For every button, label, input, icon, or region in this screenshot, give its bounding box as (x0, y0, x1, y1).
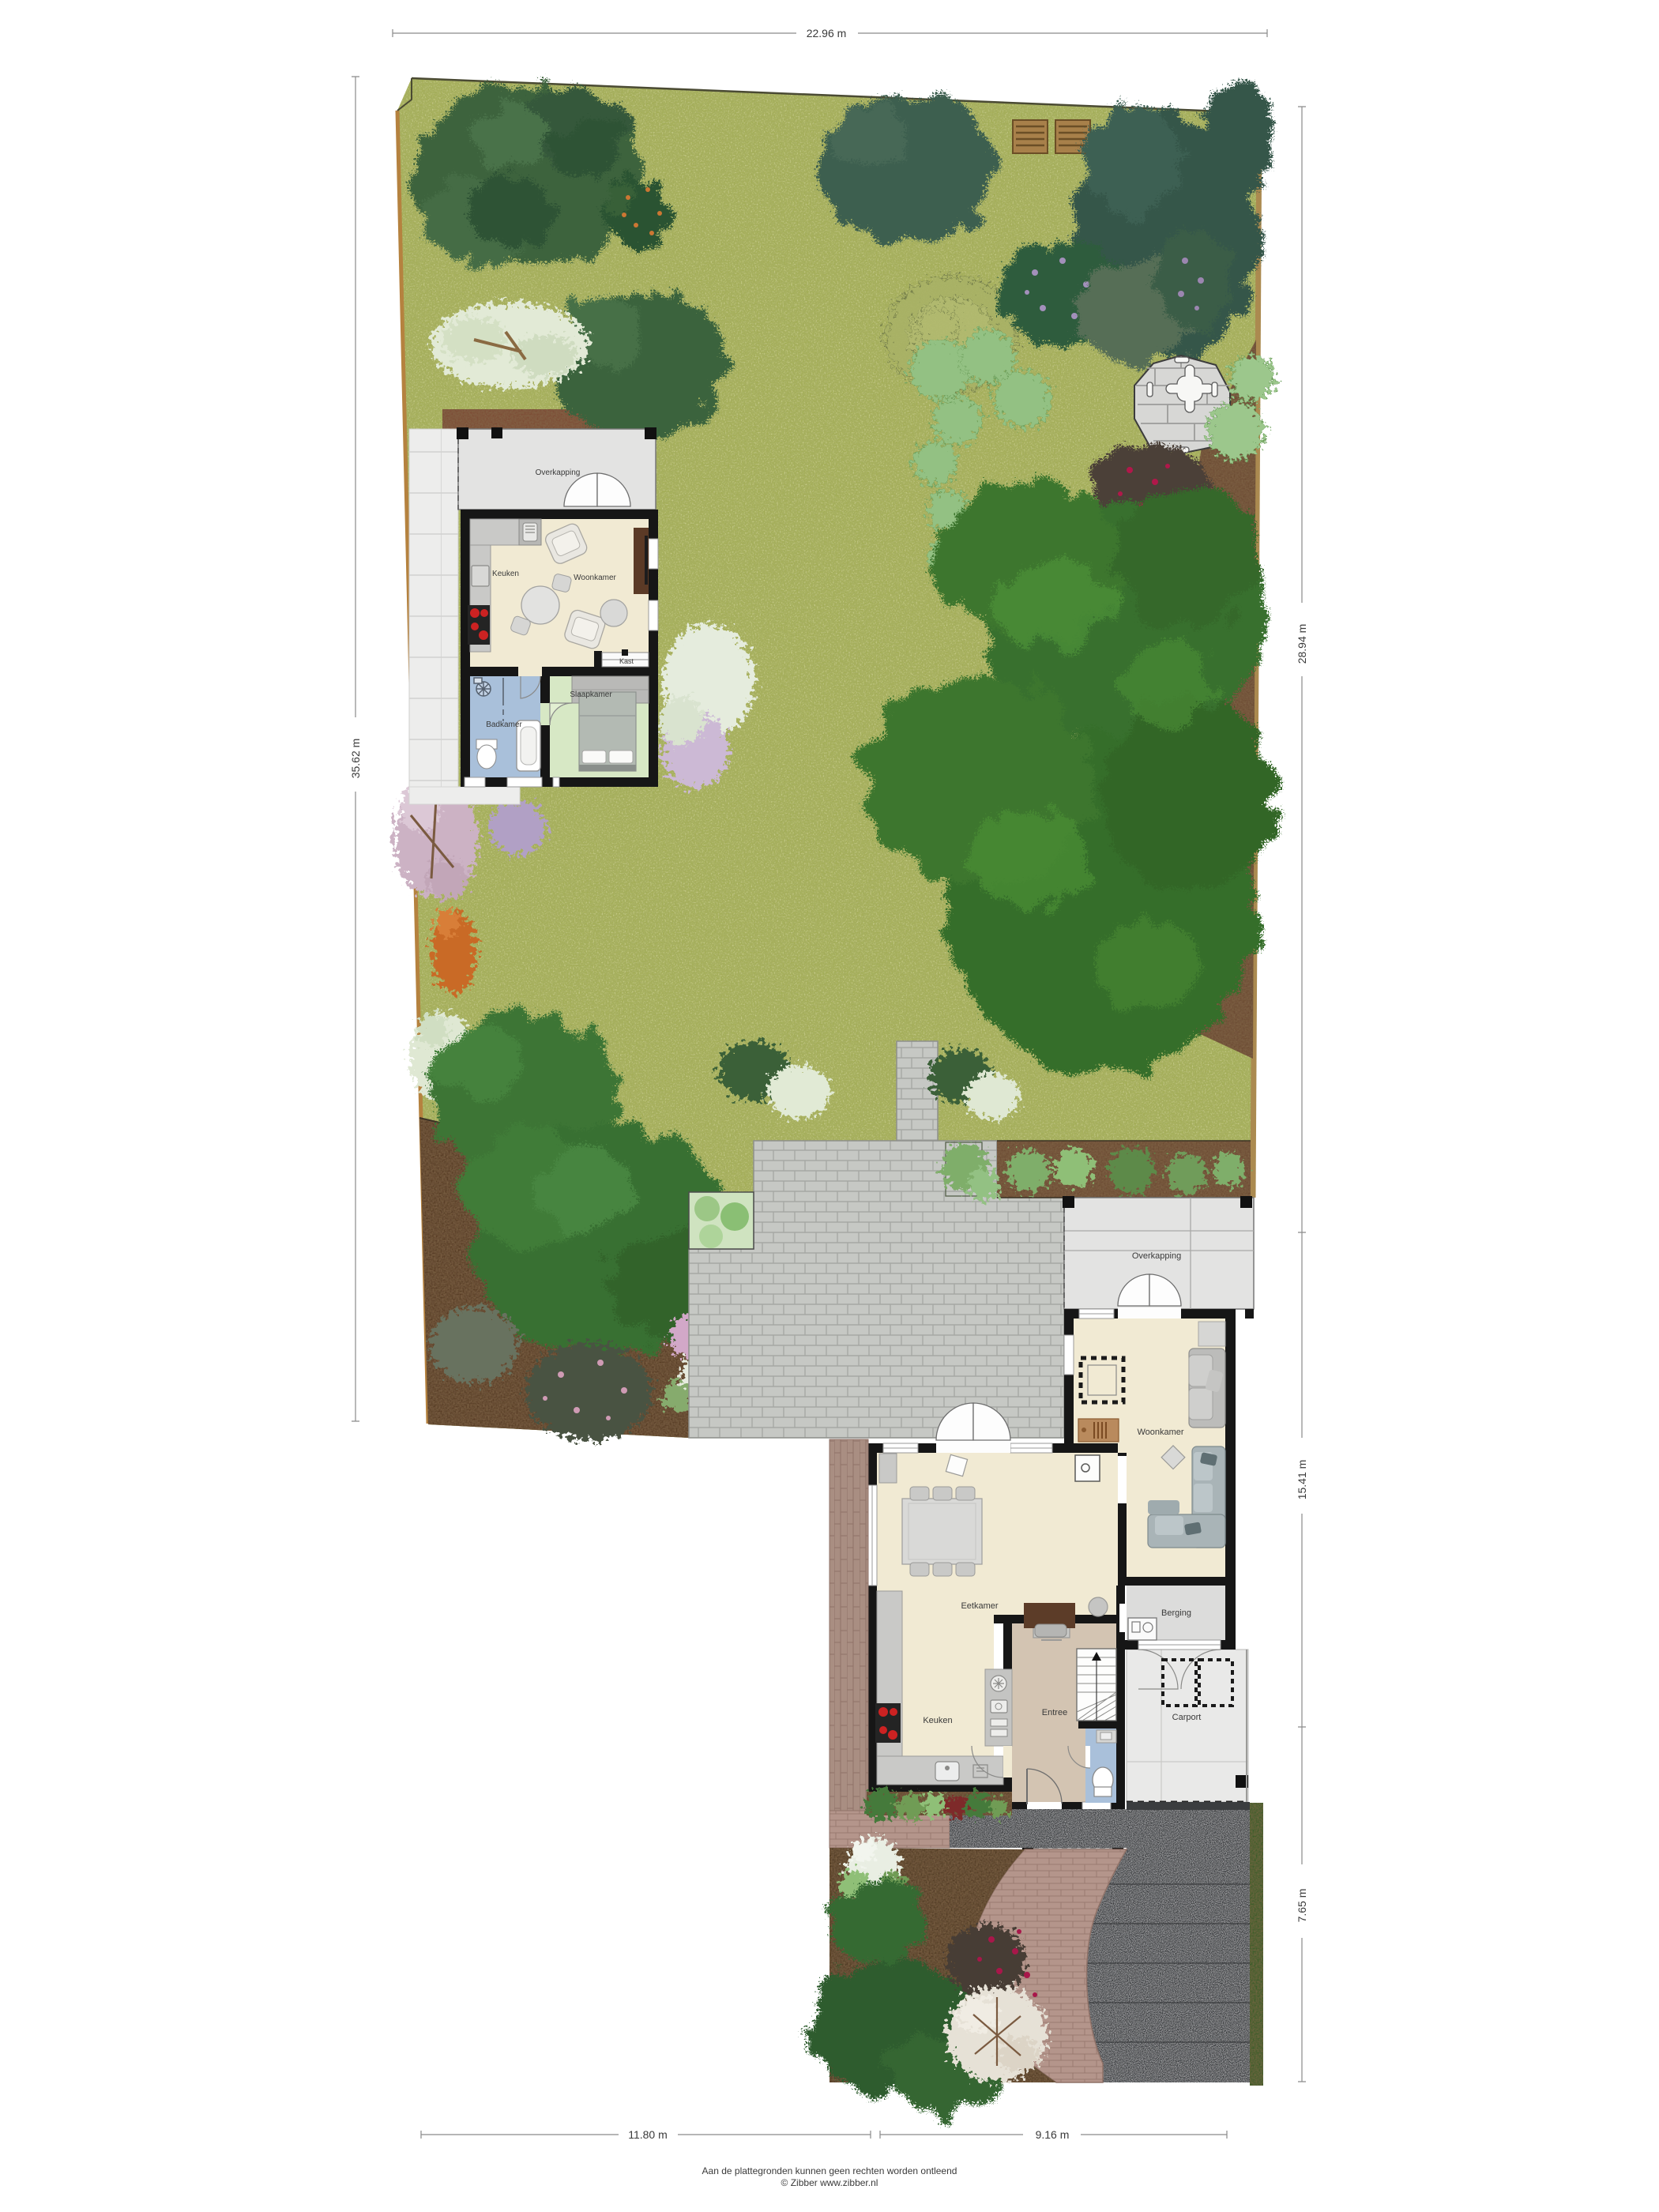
svg-text:11.80 m: 11.80 m (628, 2128, 668, 2141)
svg-text:Woonkamer: Woonkamer (1137, 1428, 1183, 1437)
svg-text:9.16 m: 9.16 m (1036, 2128, 1070, 2141)
svg-text:Overkapping: Overkapping (1132, 1251, 1181, 1261)
svg-text:22.96 m: 22.96 m (807, 27, 847, 39)
svg-text:© Zibber www.zibber.nl: © Zibber www.zibber.nl (781, 2177, 878, 2188)
svg-text:Aan de plattegronden kunnen ge: Aan de plattegronden kunnen geen rechten… (702, 2165, 957, 2176)
svg-text:Slaapkamer: Slaapkamer (570, 690, 612, 699)
svg-text:35.62 m: 35.62 m (349, 739, 362, 779)
svg-text:28.94 m: 28.94 m (1296, 624, 1308, 664)
svg-text:Kast: Kast (619, 657, 634, 665)
svg-text:7.65 m: 7.65 m (1296, 1889, 1308, 1923)
svg-text:Keuken: Keuken (492, 570, 519, 578)
svg-text:Carport: Carport (1172, 1713, 1202, 1722)
svg-text:Entree: Entree (1042, 1708, 1067, 1717)
svg-text:Keuken: Keuken (923, 1716, 952, 1725)
svg-text:Woonkamer: Woonkamer (574, 574, 616, 582)
svg-text:Berging: Berging (1161, 1608, 1191, 1618)
svg-text:15.41 m: 15.41 m (1296, 1460, 1308, 1500)
svg-text:Overkapping: Overkapping (536, 468, 581, 477)
svg-text:Badkamer: Badkamer (486, 720, 522, 729)
svg-text:Eetkamer: Eetkamer (961, 1601, 998, 1611)
